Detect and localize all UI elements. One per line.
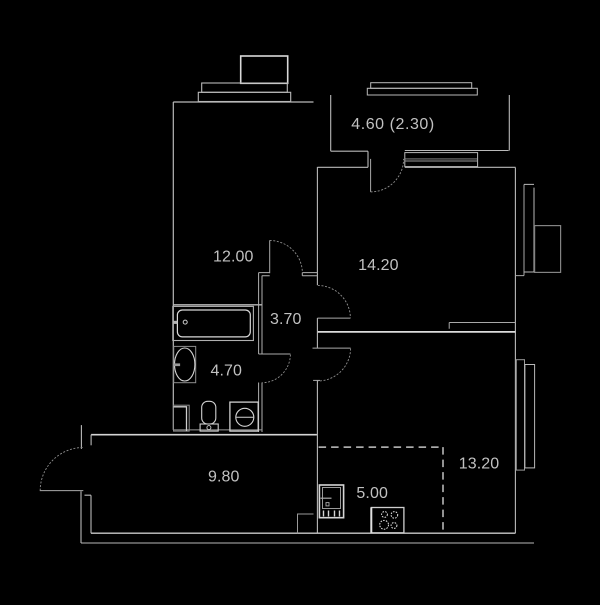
svg-text:3.70: 3.70 [270,311,302,328]
svg-text:5.00: 5.00 [356,485,388,502]
svg-text:12.00: 12.00 [213,249,254,266]
svg-text:9.80: 9.80 [208,468,240,485]
svg-text:13.20: 13.20 [459,456,500,473]
svg-text:14.20: 14.20 [358,257,399,274]
svg-text:4.70: 4.70 [211,363,243,380]
svg-text:4.60 (2.30): 4.60 (2.30) [351,116,434,133]
